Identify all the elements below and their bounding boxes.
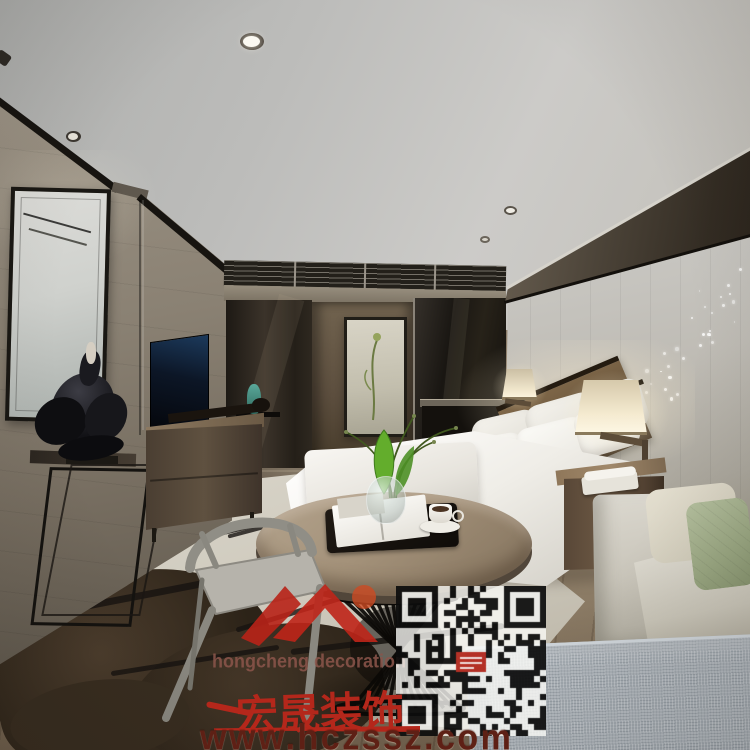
sparkle-dot [711, 341, 714, 344]
downlight [504, 206, 517, 215]
wall-lamp-shade [575, 380, 647, 434]
sparkle-dot [734, 321, 736, 323]
downlight-bulb [482, 238, 488, 241]
interior-rendering: hongcheng decoration 宏晟装饰 www.hczssz.com [0, 0, 750, 750]
sparkle-dot [727, 284, 730, 287]
sparkle-dot [704, 306, 706, 308]
sparkle-dot [711, 312, 713, 314]
vent-divider [364, 263, 367, 289]
sculpture-white-accent [86, 342, 96, 364]
sparkle-dot [699, 344, 702, 347]
sparkle-dot [722, 304, 724, 306]
cup-handle [452, 510, 464, 522]
wall-lamp-shade [502, 369, 537, 399]
vent-divider [434, 264, 437, 290]
sparkle-dot [720, 296, 722, 298]
downlight [480, 236, 490, 243]
cabinet-handle-line [150, 472, 258, 482]
sparkle-dot [729, 293, 731, 295]
downlight-bulb [506, 208, 515, 213]
sparkle-dot [699, 290, 701, 292]
website-url: www.hczssz.com [200, 718, 513, 750]
sparkle-dot [709, 330, 711, 332]
downlight [240, 33, 264, 50]
sparkle-dot [707, 333, 711, 337]
sparkle-dot [702, 333, 705, 336]
downlight-bulb [243, 36, 260, 47]
sparkle-dot [732, 300, 736, 304]
qr-code-pattern [396, 586, 546, 736]
glass-vase [366, 476, 406, 524]
sparkle-dot [739, 268, 742, 271]
wall-panel-edge [142, 200, 144, 430]
green-pillow [685, 497, 750, 592]
cabinet-decor [252, 398, 270, 412]
vent-divider [294, 262, 297, 288]
wall-panel-edge [139, 200, 141, 435]
downlight [66, 131, 81, 142]
downlight-bulb [68, 133, 78, 140]
sparkle-dot [691, 317, 693, 319]
qr-code [396, 586, 546, 736]
